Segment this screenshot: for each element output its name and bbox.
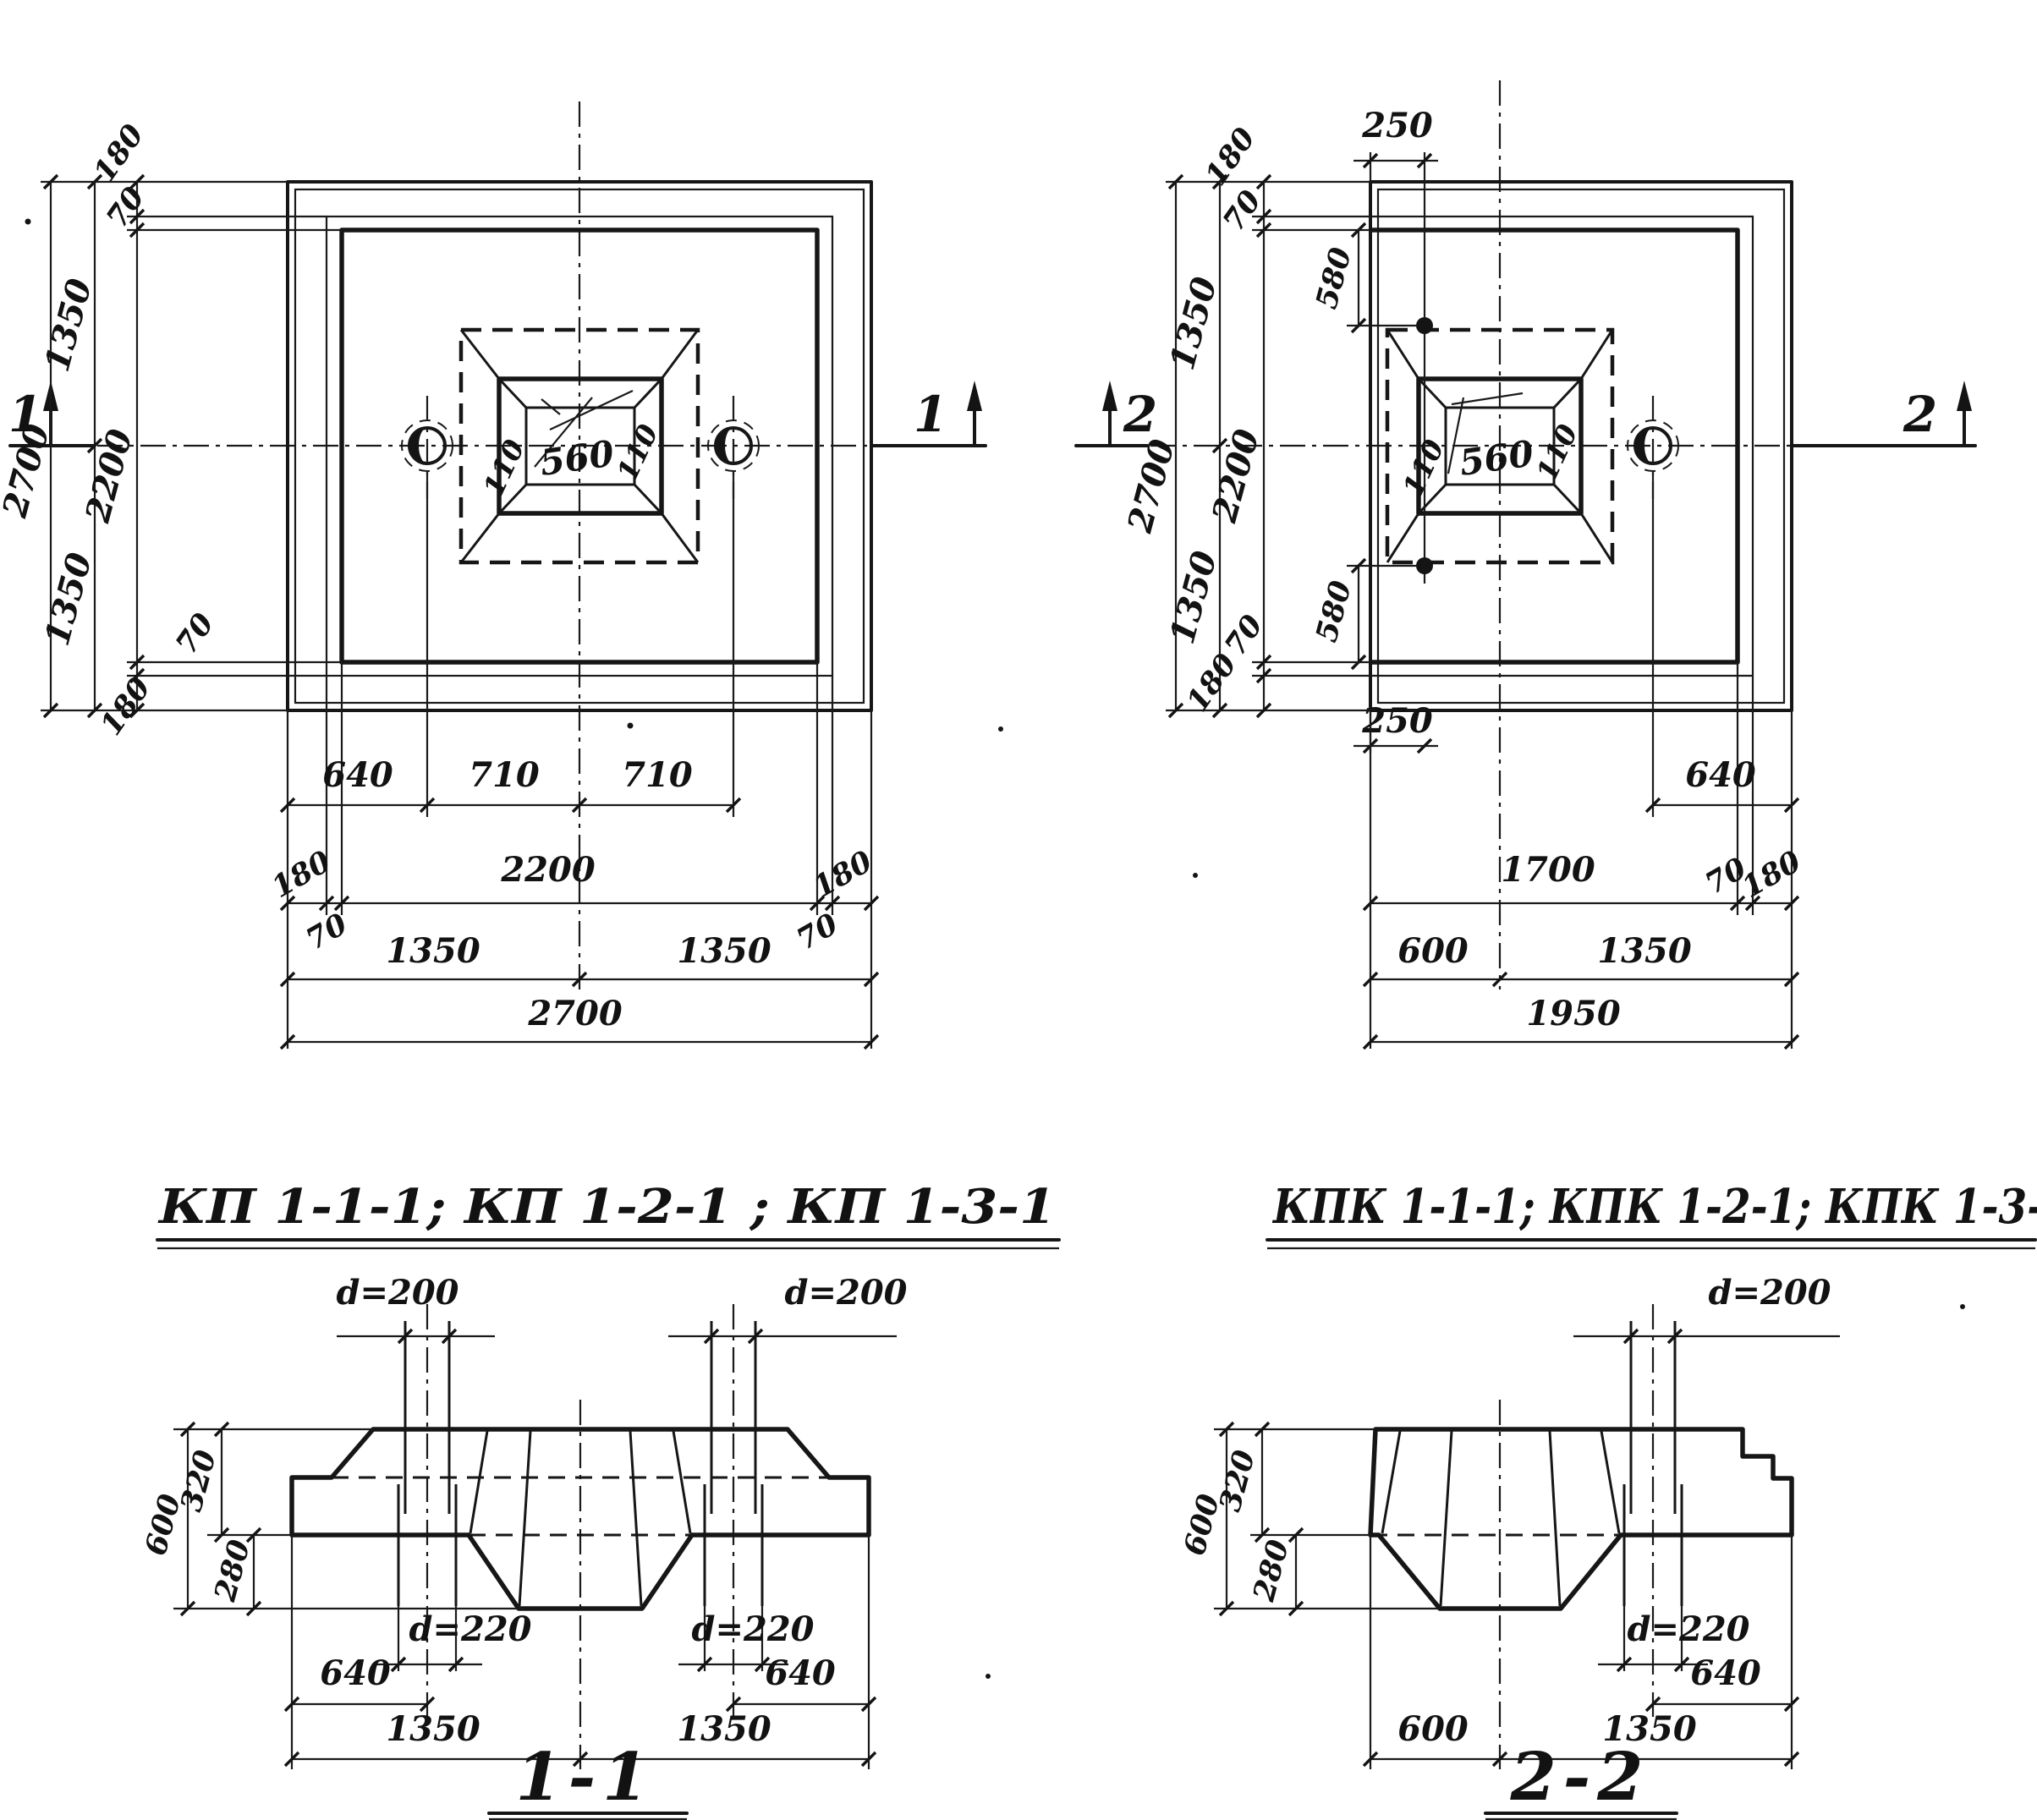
dim-70-left: 70 xyxy=(300,907,354,957)
dim-d200: d=200 xyxy=(1709,1273,1831,1313)
dim-640: 640 xyxy=(322,755,393,795)
dim-1350-top: 1350 xyxy=(37,274,100,376)
dim-1350-top: 1350 xyxy=(1162,272,1225,374)
dim-180-bottom: 180 xyxy=(1180,648,1244,718)
technical-drawing-foundation-slabs: 1 1 2700 1350 1350 2200 180 70 70 180 11… xyxy=(0,0,2037,1820)
dim-1950: 1950 xyxy=(1526,994,1620,1033)
dim-640-right: 640 xyxy=(765,1653,836,1693)
dim-d200-left: d=200 xyxy=(337,1273,459,1313)
section-marker-label: 2 xyxy=(1123,386,1157,443)
dim-70-bottom: 70 xyxy=(169,607,222,661)
plan-kpk: 250 580 580 250 2 2 2700 1350 1350 2200 … xyxy=(1076,80,1975,1049)
title-kp: КП 1-1-1; КП 1-2-1 ; КП 1-3-1 xyxy=(157,1179,1056,1235)
anchor-dot-top xyxy=(1416,317,1433,334)
section-1-1-title: 1-1 xyxy=(516,1739,656,1816)
dim-1350-right: 1350 xyxy=(677,1709,771,1749)
dim-d220-right: d=220 xyxy=(692,1609,815,1649)
dim-710-right: 710 xyxy=(622,755,693,795)
plan-kp-left-dims: 2700 1350 1350 2200 180 70 70 180 xyxy=(0,118,342,742)
dim-1700: 1700 xyxy=(1501,850,1595,890)
dim-1350-bottom: 1350 xyxy=(37,548,100,650)
dim-710-left: 710 xyxy=(469,755,540,795)
dim-d200-right: d=200 xyxy=(785,1273,908,1313)
dim-640: 640 xyxy=(1685,755,1756,795)
dim-70-right: 70 xyxy=(791,907,844,957)
dim-280: 280 xyxy=(1246,1536,1296,1605)
dim-1350-left: 1350 xyxy=(386,931,480,971)
dim-280: 280 xyxy=(207,1536,257,1605)
dim-d220: d=220 xyxy=(1628,1609,1750,1649)
dim-600: 600 xyxy=(1397,931,1469,971)
section-marker-1-right: 1 xyxy=(873,381,986,446)
dim-600-bottom: 600 xyxy=(1397,1709,1469,1749)
dim-560: 560 xyxy=(537,432,617,484)
section-body xyxy=(1370,1429,1792,1609)
dim-110-right: 110 xyxy=(610,419,664,486)
dim-2200: 2200 xyxy=(500,850,595,890)
dim-2700-vertical: 2700 xyxy=(1120,435,1183,537)
dim-320: 320 xyxy=(1213,1446,1263,1515)
dim-1350-right: 1350 xyxy=(677,931,771,971)
dim-1350-bottom: 1350 xyxy=(1162,546,1225,648)
dim-70-bottom: 70 xyxy=(1218,609,1271,662)
dim-2200-vertical: 2200 xyxy=(1205,425,1268,527)
dim-180: 180 xyxy=(1736,844,1807,905)
titles: КП 1-1-1; КП 1-2-1 ; КП 1-3-1 КПК 1-1-1;… xyxy=(157,1179,2037,1248)
dim-180-bottom: 180 xyxy=(94,672,157,742)
dim-580-top: 580 xyxy=(1309,244,1359,312)
dim-110-left: 110 xyxy=(476,435,530,502)
section-marker-label: 2 xyxy=(1902,386,1937,443)
dim-580-bottom: 580 xyxy=(1309,577,1359,645)
section-2-2: d=200 600 320 280 d=220 640 600 1350 2-2 xyxy=(1178,1273,1840,1819)
dim-1350-left: 1350 xyxy=(386,1709,480,1749)
plan-kp-bottom-dims: 640 710 710 180 2200 180 70 70 1350 1350… xyxy=(266,472,878,1049)
section-marker-2-right: 2 xyxy=(1793,381,1975,446)
anchor-dot-bottom xyxy=(1416,557,1433,574)
dim-2700: 2700 xyxy=(527,994,622,1033)
title-kpk: КПК 1-1-1; КПК 1-2-1; КПК 1-3-1 xyxy=(1271,1179,2037,1235)
dim-70-top: 70 xyxy=(100,181,152,234)
section-2-2-title: 2-2 xyxy=(1510,1739,1650,1816)
dim-560: 560 xyxy=(1457,432,1536,484)
dim-110-right: 110 xyxy=(1529,419,1584,486)
dim-640-left: 640 xyxy=(320,1653,391,1693)
dim-640: 640 xyxy=(1690,1653,1761,1693)
plan-kpk-bottom-dims: 640 1700 70 180 600 1350 1950 xyxy=(1364,472,1807,1049)
dim-d220-left: d=220 xyxy=(409,1609,532,1649)
dim-1350: 1350 xyxy=(1597,931,1691,971)
section-marker-label: 1 xyxy=(914,386,947,443)
dim-110-left: 110 xyxy=(1396,435,1450,502)
dim-320: 320 xyxy=(174,1446,224,1515)
dim-2200-vertical: 2200 xyxy=(78,425,141,527)
dim-250-bottom: 250 xyxy=(1361,701,1433,741)
plan-kp: 1 1 2700 1350 1350 2200 180 70 70 180 11… xyxy=(0,101,986,1049)
dim-250-top: 250 xyxy=(1361,106,1433,145)
section-1-1: d=200 d=200 600 320 280 d=220 d=220 640 … xyxy=(139,1273,908,1819)
